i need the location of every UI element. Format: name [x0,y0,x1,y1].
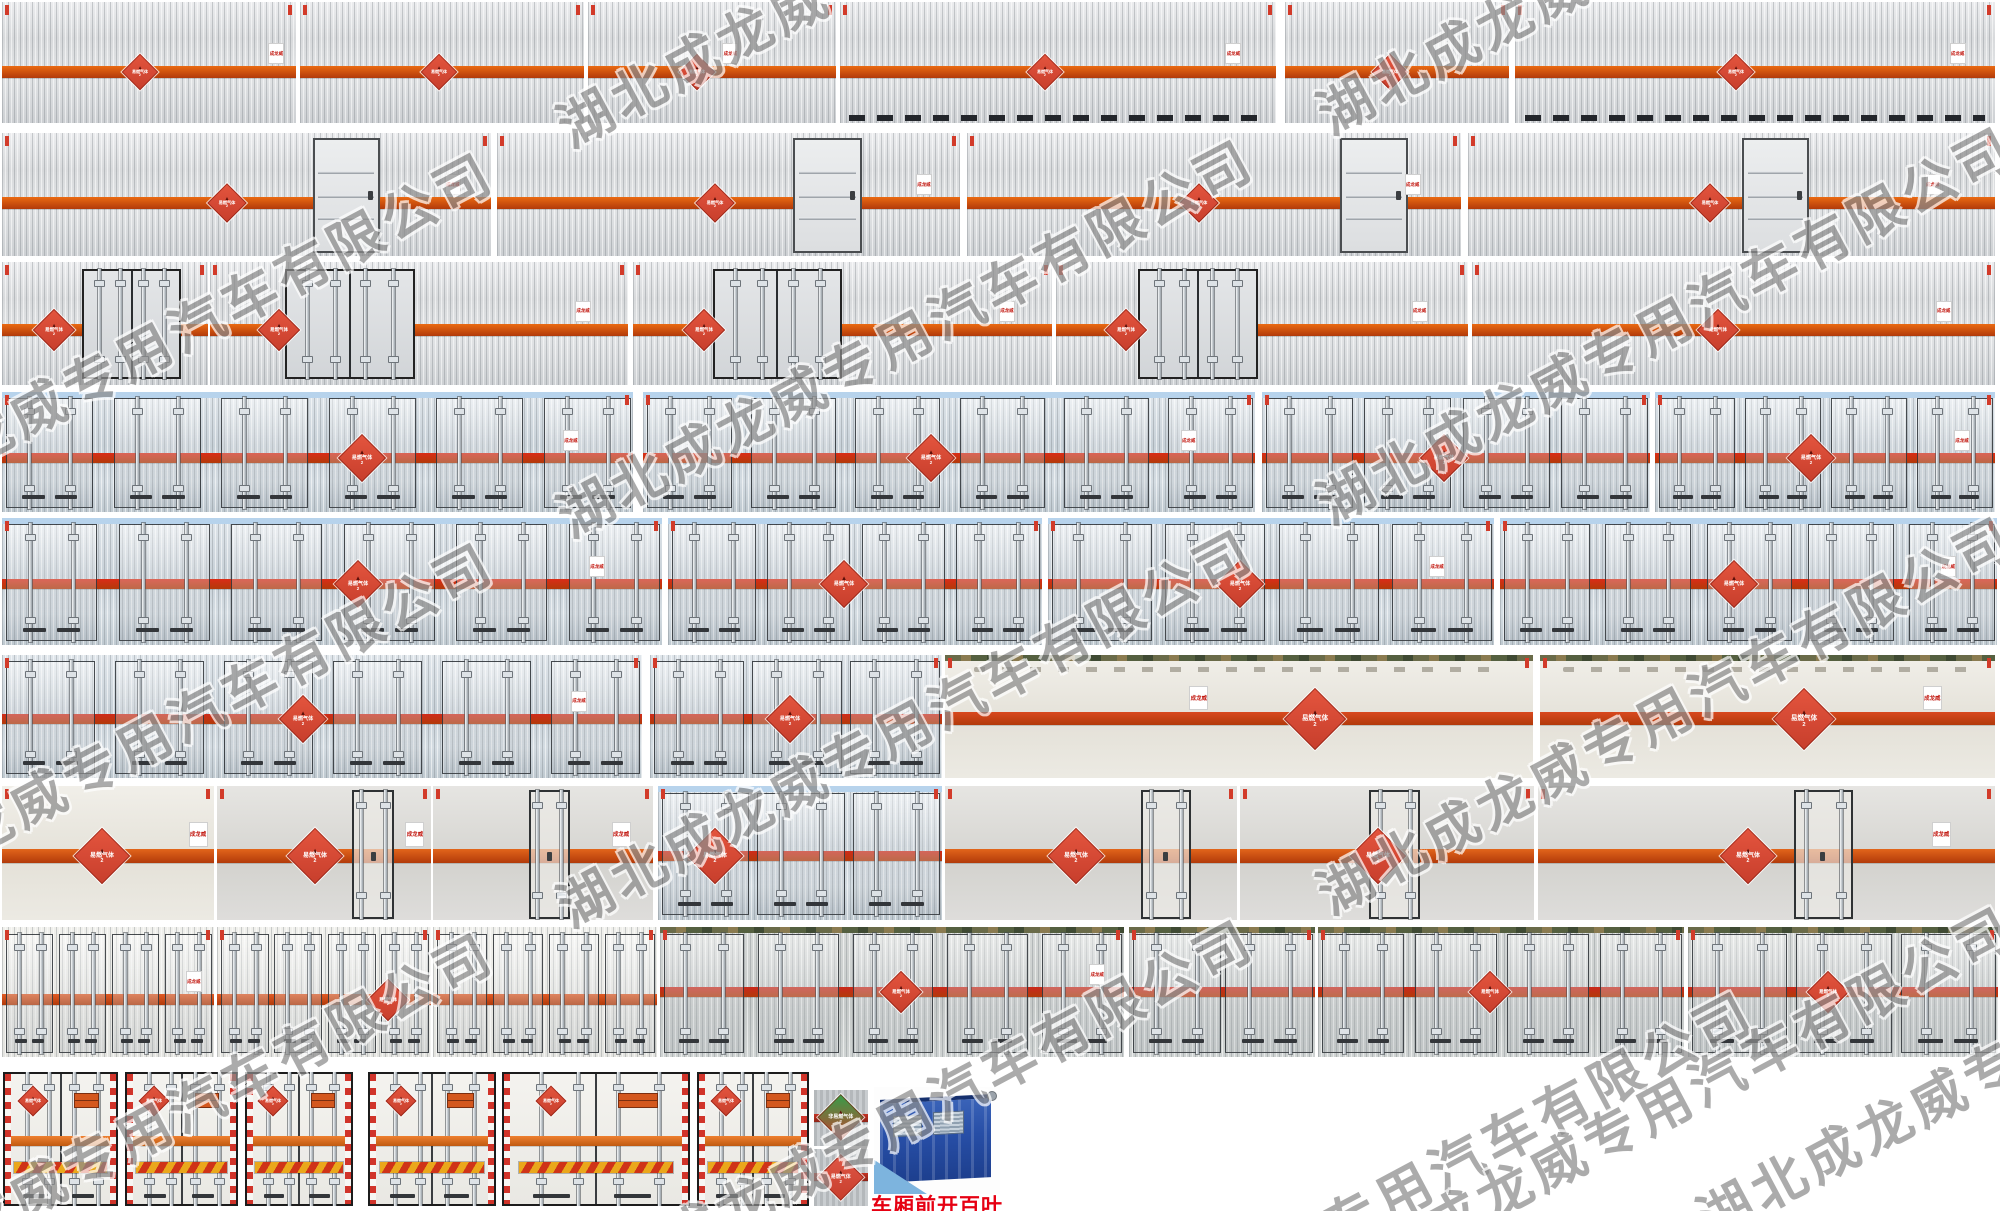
hazard-diamond-placard: ▲易燃气体2 [287,827,344,884]
door-hinge [680,803,691,810]
cargo-door-leaf [1659,398,1735,508]
truck-panel-photo: ▲易燃气体2 [945,786,1237,920]
door-latch [130,495,152,499]
door-hinge [141,1028,152,1035]
door-latch [615,1039,628,1043]
reflector-mark [576,5,580,15]
double-cargo-door [285,269,414,379]
hazard-class-number: 2 [713,859,716,864]
cargo-door-leaf [1064,398,1149,508]
door-hinge [816,803,827,810]
cargo-door-leaf [1133,934,1221,1053]
hazard-stripe [705,1136,801,1146]
hazard-class-number: 2 [714,205,716,209]
door-hinge [166,1084,177,1091]
door-latch [1297,628,1322,632]
door-hinge-bar [799,171,856,174]
door-hinge [776,890,787,897]
door-latch [1057,1039,1077,1043]
truck-panel-photo: ▲易燃气体2 [2,262,208,385]
hazard-class-number: 2 [696,74,698,77]
door-hinge [352,671,363,678]
door-latch [507,628,530,632]
door-latch [719,628,740,632]
hazard-diamond-placard: ▲易燃气体2 [1027,54,1064,91]
door-hinge [771,671,782,678]
door-hinge [1285,944,1296,951]
cargo-door-leaf [1909,524,1995,640]
door-latch [132,761,155,765]
cargo-door-leaf [456,524,547,640]
door-latch [869,902,891,906]
reflector-mark [5,395,9,405]
door-hinge [1176,892,1187,899]
door-hinge [263,1178,274,1185]
door-latch [1413,495,1435,499]
truck-panel-photo: ▲易燃气体2成龙威 [2,133,491,256]
door-hinge [1765,617,1776,624]
hazard-diamond-placard: ▲易燃气体2 [1717,54,1754,91]
door-handle [1820,852,1825,861]
brand-logo-sticker: 成龙威 [189,822,208,847]
hazard-diamond-placard: ▲易燃气体2 [1372,54,1409,91]
brand-logo-sticker: 成龙威 [722,43,738,64]
door-hinge [144,1178,155,1185]
door-latch [1087,1039,1107,1043]
door-hinge [1151,1028,1162,1035]
door-hinge [25,534,36,541]
door-latch [782,628,803,632]
door-hinge [1423,485,1434,492]
reflector-mark [436,789,440,799]
truck-panel-photo: ▲易燃气体2成龙威 [2,786,214,920]
door-latch [1824,628,1846,632]
door-latch [1182,1039,1204,1043]
truck-panel-photo: ▲易燃气体2成龙威 [1472,262,1995,385]
door-hinge [461,671,472,678]
door-latch [345,495,367,499]
door-lock-rod [1180,790,1183,919]
door-hinge [352,751,363,758]
reflector-mark [1987,5,1991,15]
door-latch [68,1039,80,1043]
door-latch [1856,628,1878,632]
door-hinge [964,944,975,951]
door-handle [368,191,373,200]
door-hinge [94,356,105,363]
door-hinge [347,485,358,492]
door-hinge [785,1084,796,1091]
door-hinge [788,356,799,363]
door-lock-rod [1150,790,1153,919]
reflector-mark [934,658,938,668]
door-hinge-bar [1346,217,1403,220]
door-hinge [1866,534,1877,541]
brand-logo-sticker: 成龙威 [1181,430,1197,451]
door-hinge [570,671,581,678]
rear-door-frame [697,1072,809,1206]
door-hinge [1347,534,1358,541]
hazard-class-number: 2 [32,1104,34,1107]
cargo-door-leaf [1831,398,1907,508]
truck-panel-photo: ▲易燃气体2 [658,786,942,920]
door-hinge [411,944,422,951]
door-hinge [66,751,77,758]
door-hinge [1431,944,1442,951]
orange-placard-line [767,1100,789,1101]
background-trees-strip [660,927,1124,933]
cargo-door-leaf [1917,398,1993,508]
brand-logo-sticker: 成龙威 [916,174,932,195]
door-hinge [1817,1028,1828,1035]
door-hinge [1234,534,1245,541]
door-lock-rod [29,523,32,641]
reflector-mark [634,658,638,668]
orange-placard-line [196,1100,219,1101]
door-latch [1080,495,1102,499]
door-hinge [869,671,880,678]
door-latch [1845,495,1864,499]
door-hinge [532,892,543,899]
door-latch [237,495,259,499]
cargo-door-leaf [6,398,93,508]
door-hinge [69,1084,80,1091]
reflector-mark [1307,930,1311,940]
door-latch [1925,628,1947,632]
door-hinge [613,944,624,951]
door-hinge [330,280,341,287]
door-latch [444,1194,469,1198]
door-hinge [977,408,988,415]
door-hinge-bar [1748,217,1804,220]
door-hinge [689,617,700,624]
door-latch [15,1039,27,1043]
door-latch [1787,495,1806,499]
door-lock-rod [635,523,638,641]
door-latch [309,1194,330,1198]
door-hinge [1073,617,1084,624]
door-hinge [907,944,918,951]
door-hinge [415,1178,426,1185]
door-hinge [813,671,824,678]
door-hinge [68,617,79,624]
hazard-class-number: 2 [550,1104,552,1107]
door-hinge [336,1028,347,1035]
reflector-mark [646,395,650,405]
door-hinge-bar [318,195,374,198]
door-hinge [654,1178,665,1185]
door-lock-rod [360,790,363,919]
door-hinge [1655,944,1666,951]
door-hinge [812,1028,823,1035]
double-cargo-door [82,269,181,379]
door-hinge [1562,534,1573,541]
door-latch [162,495,184,499]
door-hinge [138,617,149,624]
reflective-edge-stripe [682,1074,688,1204]
brand-logo-sticker: 成龙威 [1405,174,1421,195]
door-hinge [1861,1028,1872,1035]
door-latch [900,761,923,765]
door-hinge [1712,1028,1723,1035]
door-hinge [665,485,676,492]
reflector-mark [948,789,952,799]
door-hinge [907,1028,918,1035]
reflective-edge-stripe [488,1074,494,1204]
reflector-mark [1453,136,1457,146]
door-hinge [24,408,35,415]
door-hinge [1724,534,1735,541]
door-hinge [284,751,295,758]
door-hinge [718,1028,729,1035]
door-hinge [141,944,152,951]
door-hinge [172,944,183,951]
door-hinge [393,751,404,758]
door-latch [1411,628,1436,632]
door-hinge [67,944,78,951]
orange-placard [311,1093,335,1108]
door-latch [32,1039,44,1043]
cargo-door [1742,138,1809,253]
cargo-door-leaf [664,934,744,1053]
hazard-diamond-label: ▲易燃气体2 [1056,836,1096,876]
door-hinge [1244,944,1255,951]
reflector-mark [5,265,9,275]
door-hinge [1836,802,1847,809]
door-hinge [1073,534,1084,541]
truck-panel-photo: ▲易燃气体2 [1318,927,1684,1057]
door-hinge [1120,534,1131,541]
door-hinge [1524,1028,1535,1035]
door-hinge [689,534,700,541]
door-hinge [159,356,170,363]
door-hinge [1232,356,1243,363]
door-latch [1149,1039,1171,1043]
container-ribs [880,1098,991,1183]
hazard-diamond-label: ▲易燃气体2 [286,702,320,736]
brand-logo-sticker: 成龙威 [186,971,202,992]
door-hinge [716,1178,727,1185]
truck-panel-photo [433,927,657,1057]
door-hinge [1176,802,1187,809]
door-latch [814,628,835,632]
door-lock-rod [142,523,145,641]
cargo-door-leaf [569,524,660,640]
door-hinge [1796,408,1807,415]
door-latch [671,761,694,765]
reflector-mark [1543,658,1547,668]
hazard-stripe [253,1136,345,1146]
reflector-mark [1116,930,1120,940]
hazard-diamond-label: ▲易燃气体2 [22,1090,44,1112]
door-hinge [1817,944,1828,951]
door-latch [908,628,929,632]
door-hinge [562,485,573,492]
door-hinge [304,1028,315,1035]
door-lock-rod [72,523,75,641]
truck-panel-photo: ▲易燃气体2 [245,1072,353,1206]
door-latch [503,1039,516,1043]
orange-placard-line [619,1100,657,1101]
reflector-mark [1229,789,1233,799]
door-hinge [380,892,391,899]
door-hinge [356,802,367,809]
door-latch [377,495,399,499]
door-hinge [306,1178,317,1185]
brand-logo-sticker: 成龙威 [1089,964,1105,985]
door-lock-rod [1077,523,1080,641]
door-hinge [469,1084,480,1091]
reflector-mark [5,521,9,531]
door-hinge [93,1178,104,1185]
cargo-door-leaf [1392,524,1492,640]
door-hinge [304,944,315,951]
brand-logo-sticker: 成龙威 [575,301,591,322]
cargo-door-leaf [1600,934,1682,1053]
cargo-door-leaf [1052,524,1152,640]
door-latch [274,761,297,765]
door-latch [22,495,44,499]
door-hinge [869,1028,880,1035]
door-hinge [36,944,47,951]
door-lock-rod [1931,523,1934,641]
hazard-diamond-label: ▲易燃气体2 [773,702,807,736]
door-latch [144,1194,166,1198]
door-hinge [94,280,105,287]
truck-panel-photo: ▲易燃气体2成龙威 [1515,2,1995,123]
door-hinge [1154,280,1165,287]
hazard-class-number: 2 [302,722,304,726]
door-hinge [823,617,834,624]
door-hinge [454,485,465,492]
door-hinge [1244,1028,1255,1035]
hazard-diamond-label: ▲非易燃气体2 [824,1101,857,1134]
hazard-diamond-label: ▲易燃气体2 [39,315,69,345]
truck-panel-photo: ▲易燃气体2 [1240,786,1534,920]
door-hinge [771,751,782,758]
door-hinge-bar [799,195,856,198]
door-hinge [495,485,506,492]
hazard-class-number: 2 [278,332,280,336]
door-hinge [347,408,358,415]
door-hinge [406,617,417,624]
placard-photo-flammable-gas: ▲易燃气体2 [814,1149,868,1206]
hazard-diamond-label: ▲易燃气体2 [701,189,729,217]
door-hinge [251,1028,262,1035]
truck-panel-photo: ▲易燃气体2 [1285,2,1509,123]
door-hinge-bar [1748,171,1804,174]
door-latch [85,1039,97,1043]
door-hinge [785,1178,796,1185]
cargo-door-leaf [112,934,159,1053]
cargo-door-leaf [328,934,376,1053]
cargo-door-leaf [956,524,1040,640]
cargo-door-leaf [1561,398,1648,508]
door-hinge [1861,944,1872,951]
door-hinge [518,617,529,624]
cargo-door-leaf [853,793,940,916]
reflector-mark [1658,395,1662,405]
hazard-class-number: 2 [1389,74,1391,77]
door-hinge [1081,408,1092,415]
door-hinge [442,1178,453,1185]
door-hinge [250,534,261,541]
door-hinge [380,802,391,809]
door-hinge [562,408,573,415]
door-hinge [1225,485,1236,492]
orange-placard-line [448,1100,474,1101]
brand-logo-sticker: 成龙威 [1225,43,1241,64]
reflector-mark [1132,930,1136,940]
door-center-split [131,271,133,377]
door-hinge [132,408,143,415]
door-hinge [1284,485,1295,492]
door-latch [1957,628,1979,632]
container-photo [874,1087,1000,1194]
hazard-diamond-label: ▲易燃气体2 [1782,697,1826,741]
hazard-diamond-label: ▲易燃气体2 [1185,189,1213,217]
door-latch [1653,628,1675,632]
brand-logo-sticker: 成龙威 [1940,556,1956,577]
reflector-mark [1989,521,1993,531]
door-hinge [1013,534,1024,541]
door-hinge [1146,802,1157,809]
chevron-warning-band [708,1162,799,1173]
door-hinge [911,671,922,678]
hazard-class-number: 2 [1125,332,1127,336]
door-latch [799,495,821,499]
door-lock-rod [254,523,257,641]
background-trees-strip [1688,927,1998,933]
hazard-diamond-label: ▲易燃气体2 [345,441,379,475]
door-latch [1242,1039,1264,1043]
reflector-mark [220,789,224,799]
reflector-mark [663,930,667,940]
hazard-class-number: 2 [840,1121,842,1125]
cargo-door-leaf [947,934,1027,1053]
door-hinge [1121,485,1132,492]
door-hinge [1375,892,1386,899]
door-latch [452,495,474,499]
door-latch [1745,1039,1769,1043]
door-latch [174,1039,186,1043]
door-hinge [1579,485,1590,492]
sky-strip [1048,518,1494,524]
door-lock-rod [883,523,886,641]
door-hinge [1760,408,1771,415]
door-hinge [613,1178,624,1185]
door-lock-rod [1830,523,1833,641]
orange-placard-line [75,1100,98,1101]
orange-placard [447,1093,475,1108]
door-hinge [1760,485,1771,492]
reflector-mark [1987,658,1991,668]
door-lock-rod [1667,523,1670,641]
cargo-door-leaf [274,934,322,1053]
door-hinge [974,534,985,541]
door-hinge [134,671,145,678]
reflective-edge-stripe [801,1074,807,1204]
door-latch [354,1039,366,1043]
hazard-class-number: 2 [1732,587,1734,591]
door-hinge [721,803,732,810]
cargo-door [1794,790,1853,919]
door-latch [1523,1039,1544,1043]
door-hinge [1522,617,1533,624]
door-hinge [1096,944,1107,951]
door-hinge [1801,892,1812,899]
door-hinge [132,485,143,492]
